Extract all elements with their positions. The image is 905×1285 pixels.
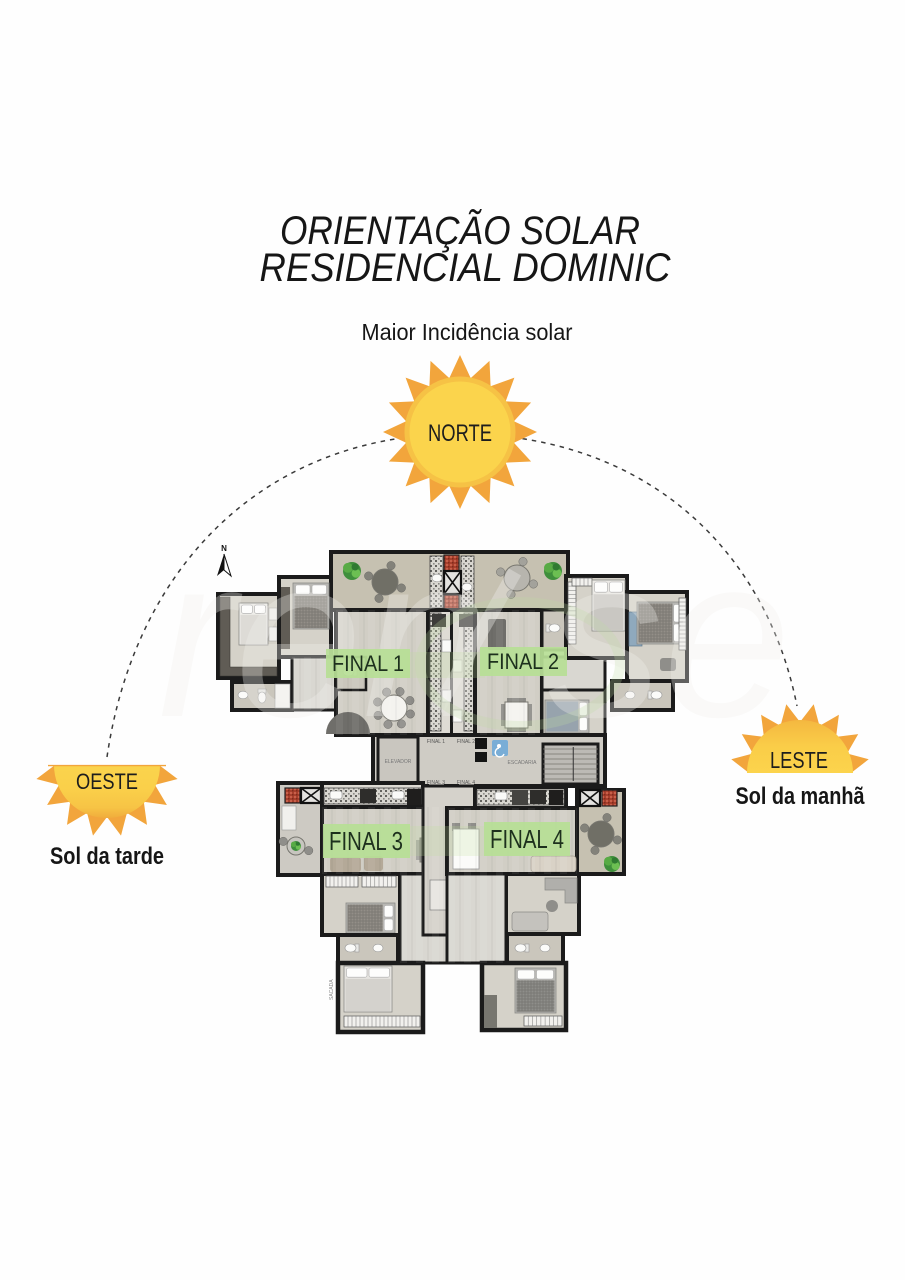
svg-text:Maior Incidência solar: Maior Incidência solar (362, 319, 573, 345)
svg-text:OESTE: OESTE (76, 769, 138, 794)
svg-text:NORTE: NORTE (428, 420, 492, 447)
svg-text:ren: ren (158, 508, 490, 765)
svg-text:FINAL 2: FINAL 2 (487, 649, 559, 674)
svg-text:se: se (548, 508, 791, 765)
svg-text:FINAL 3: FINAL 3 (329, 826, 403, 856)
svg-text:Sol da tarde: Sol da tarde (50, 843, 164, 870)
svg-text:FINAL 1: FINAL 1 (332, 651, 404, 676)
svg-text:Sol da manhã: Sol da manhã (736, 783, 866, 810)
svg-text:ESCADARIA: ESCADARIA (508, 760, 538, 766)
svg-text:FINAL 4: FINAL 4 (490, 824, 564, 854)
svg-text:RESIDENCIAL DOMINIC: RESIDENCIAL DOMINIC (260, 246, 672, 290)
svg-text:SACADA: SACADA (329, 979, 335, 1000)
